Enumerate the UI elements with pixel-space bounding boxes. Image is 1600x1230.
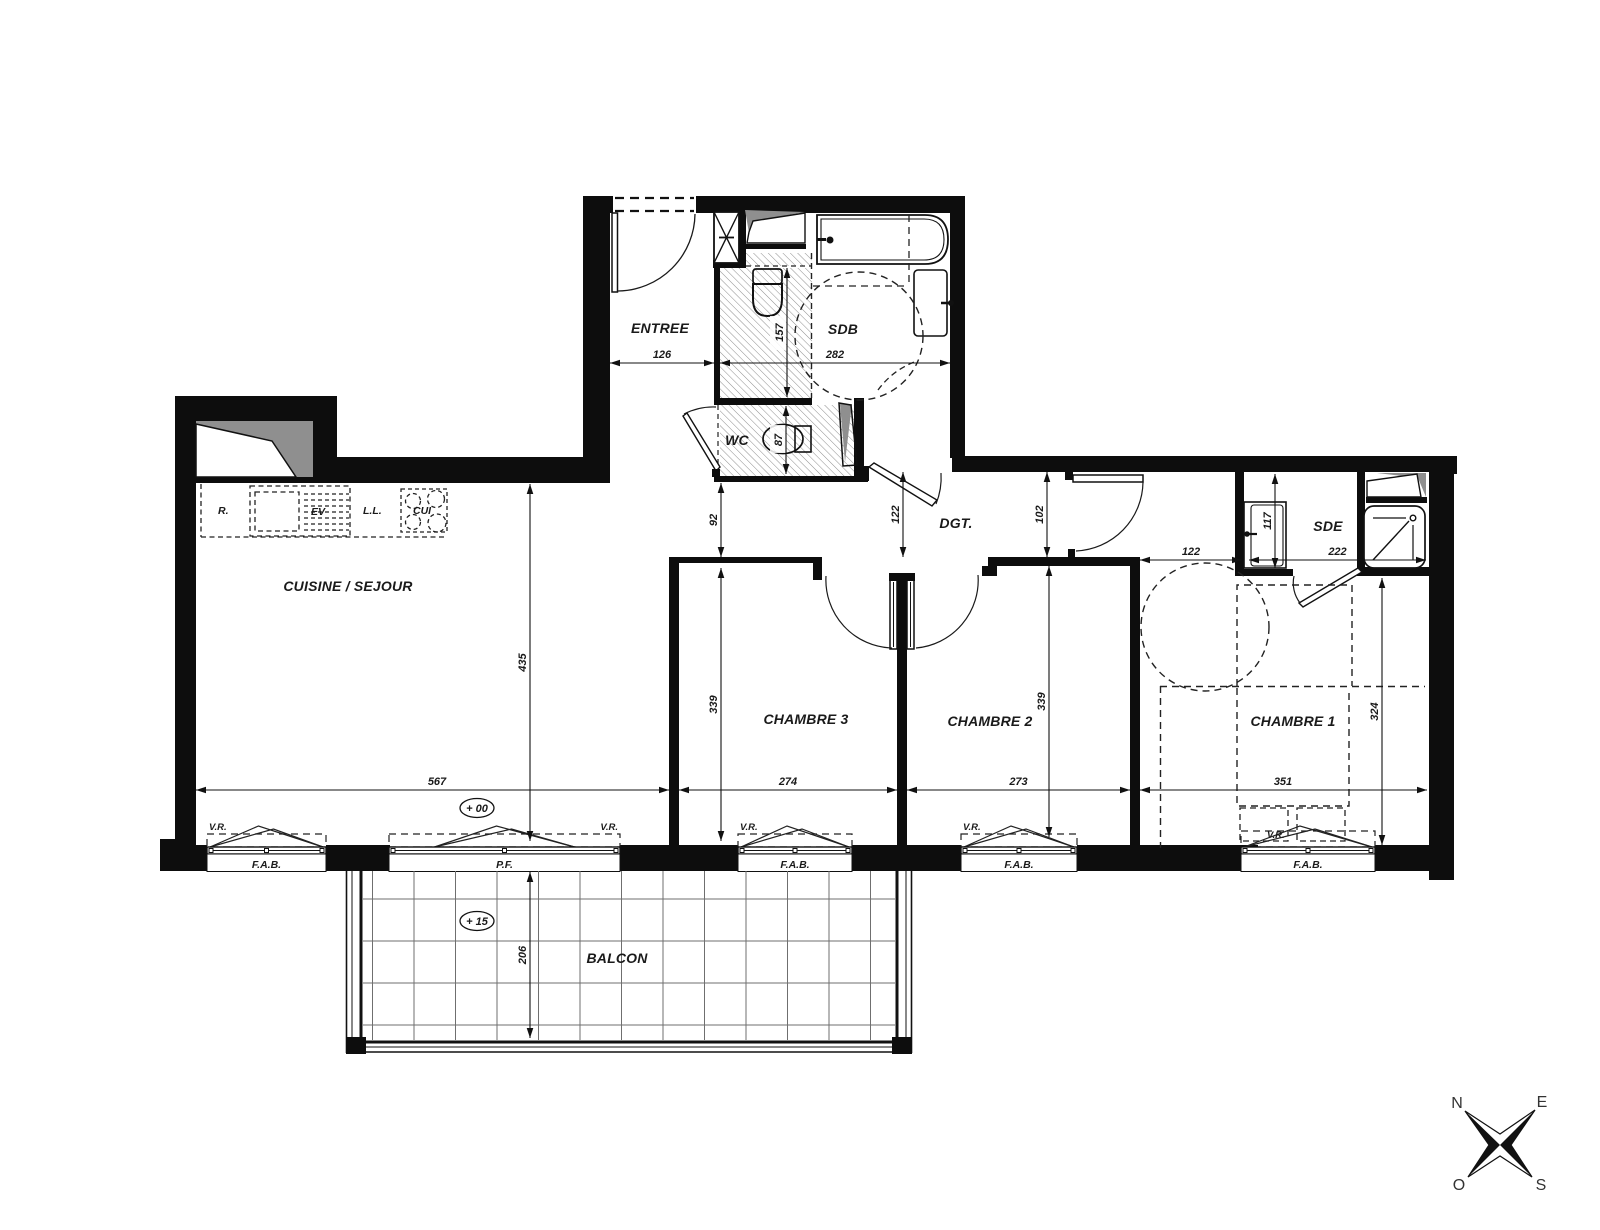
svg-text:ENTREE: ENTREE bbox=[631, 320, 689, 336]
svg-text:DGT.: DGT. bbox=[939, 515, 972, 531]
svg-text:BALCON: BALCON bbox=[586, 950, 648, 966]
svg-text:V.R.: V.R. bbox=[600, 822, 618, 833]
svg-text:SDE: SDE bbox=[1313, 518, 1343, 534]
svg-text:351: 351 bbox=[1274, 776, 1292, 788]
svg-text:87: 87 bbox=[773, 433, 785, 446]
svg-text:V.R.: V.R. bbox=[740, 822, 758, 833]
svg-text:206: 206 bbox=[517, 945, 529, 965]
svg-text:WC: WC bbox=[725, 432, 749, 448]
svg-text:O: O bbox=[1453, 1177, 1465, 1194]
svg-text:F.A.B.: F.A.B. bbox=[1004, 859, 1033, 871]
svg-text:V.R.: V.R. bbox=[963, 822, 981, 833]
svg-text:126: 126 bbox=[653, 349, 672, 361]
svg-text:R.: R. bbox=[218, 505, 229, 517]
svg-text:92: 92 bbox=[708, 514, 720, 526]
svg-text:E: E bbox=[1537, 1094, 1548, 1111]
svg-text:102: 102 bbox=[1034, 505, 1046, 523]
svg-text:CHAMBRE 1: CHAMBRE 1 bbox=[1250, 713, 1335, 729]
svg-text:+ 00: + 00 bbox=[466, 803, 489, 815]
svg-text:117: 117 bbox=[1262, 511, 1274, 529]
svg-text:222: 222 bbox=[1327, 546, 1346, 558]
svg-text:282: 282 bbox=[825, 349, 844, 361]
svg-text:F.A.B.: F.A.B. bbox=[780, 859, 809, 871]
svg-text:157: 157 bbox=[774, 322, 786, 341]
svg-text:V.R.: V.R. bbox=[1267, 830, 1285, 841]
svg-text:122: 122 bbox=[890, 505, 902, 523]
svg-text:L.L.: L.L. bbox=[363, 505, 382, 517]
svg-text:EV: EV bbox=[311, 506, 326, 518]
svg-text:CHAMBRE 3: CHAMBRE 3 bbox=[763, 711, 848, 727]
svg-text:F.A.B.: F.A.B. bbox=[1293, 859, 1322, 871]
svg-text:435: 435 bbox=[517, 652, 529, 672]
svg-text:CUISINE / SEJOUR: CUISINE / SEJOUR bbox=[283, 578, 413, 594]
svg-text:274: 274 bbox=[778, 776, 797, 788]
svg-text:339: 339 bbox=[708, 694, 720, 713]
svg-text:273: 273 bbox=[1008, 776, 1027, 788]
svg-text:F.A.B.: F.A.B. bbox=[252, 859, 281, 871]
svg-text:P.F.: P.F. bbox=[496, 859, 513, 871]
svg-text:567: 567 bbox=[428, 776, 447, 788]
svg-text:CUI: CUI bbox=[413, 505, 432, 517]
svg-text:SDB: SDB bbox=[828, 321, 858, 337]
svg-text:CHAMBRE 2: CHAMBRE 2 bbox=[947, 713, 1032, 729]
svg-text:339: 339 bbox=[1036, 691, 1048, 710]
svg-text:V.R.: V.R. bbox=[209, 822, 227, 833]
svg-text:122: 122 bbox=[1182, 546, 1200, 558]
svg-text:N: N bbox=[1451, 1095, 1463, 1112]
svg-text:+ 15: + 15 bbox=[466, 916, 489, 928]
svg-text:324: 324 bbox=[1369, 702, 1381, 720]
svg-text:S: S bbox=[1536, 1177, 1547, 1194]
